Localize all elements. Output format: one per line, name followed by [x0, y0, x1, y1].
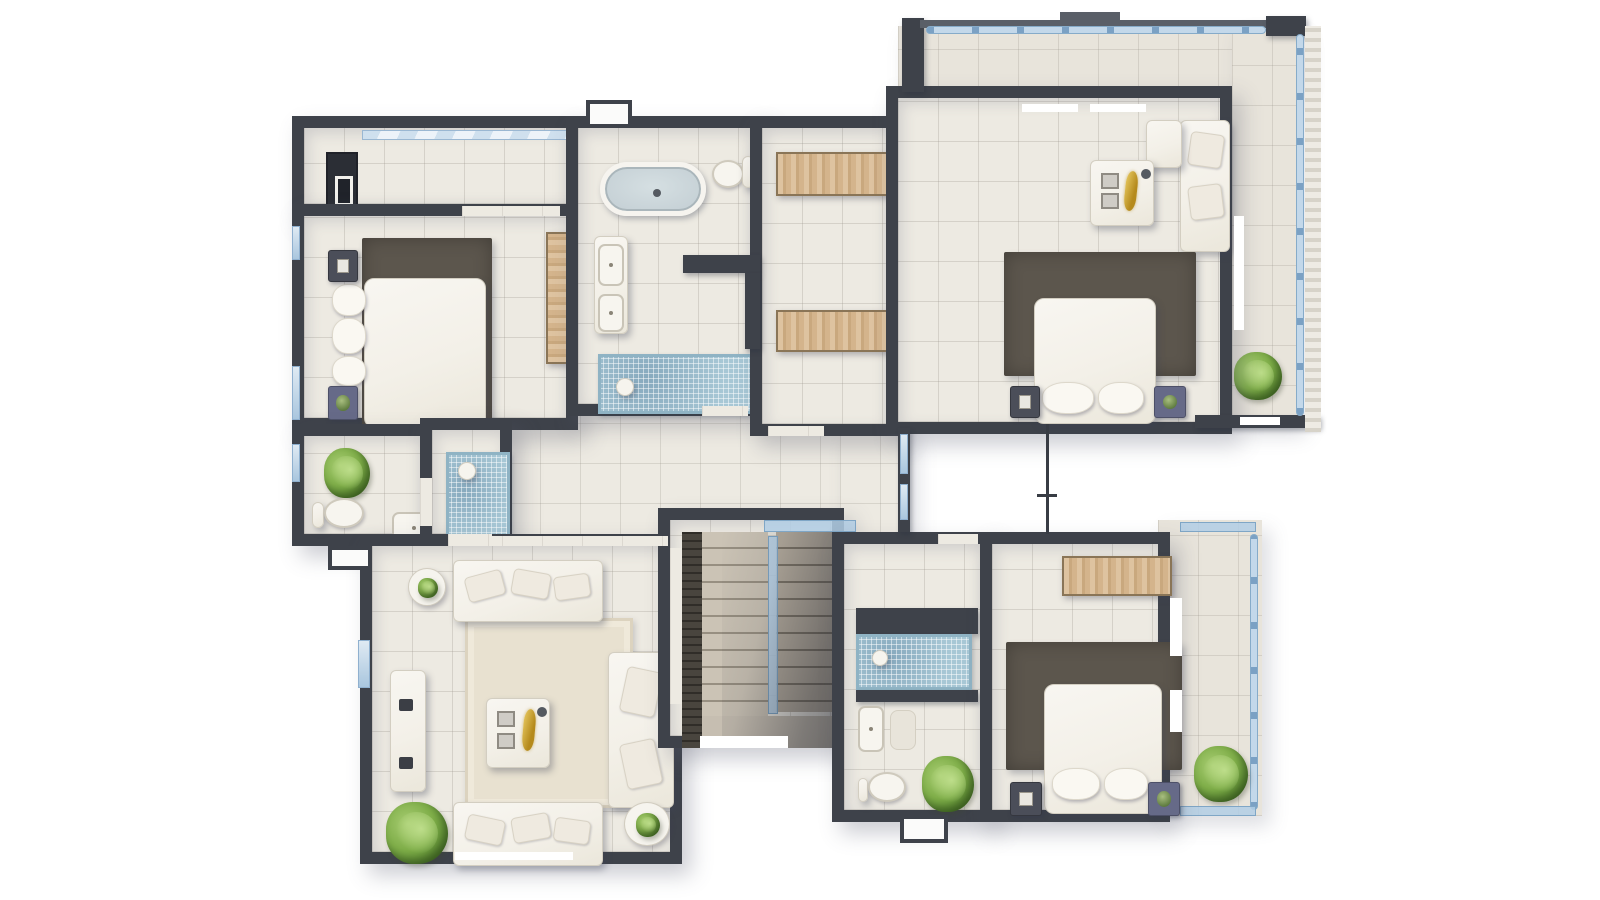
- toilet: [324, 498, 364, 528]
- living-room: [360, 534, 682, 864]
- side-table: [624, 802, 670, 846]
- balcony-door: [1170, 598, 1182, 656]
- sink: [598, 294, 624, 332]
- terrace-side-wall: [902, 18, 924, 92]
- table-plant: [418, 578, 438, 598]
- nightstand: [1154, 386, 1186, 418]
- glass-slider-door: [362, 130, 578, 140]
- terrace-edge-stub: [1060, 12, 1120, 22]
- pillow: [1052, 768, 1100, 800]
- side-table: [408, 568, 446, 606]
- terrace-corner: [1266, 16, 1306, 36]
- nightstand: [1010, 782, 1042, 816]
- cushion: [510, 568, 552, 600]
- decor-book: [399, 757, 413, 769]
- tv-stand: [1090, 160, 1154, 226]
- shower-room: [420, 418, 512, 546]
- stair-glass-top: [764, 520, 856, 532]
- sofa: [1180, 120, 1230, 252]
- console-table: [390, 670, 426, 792]
- pillow: [1098, 382, 1144, 414]
- window: [292, 366, 300, 420]
- gold-leaf-decor: [521, 709, 537, 752]
- vent-stub: [328, 546, 372, 570]
- shower-head: [616, 378, 634, 396]
- pillow: [332, 356, 366, 386]
- terrace-railing: [926, 26, 1266, 34]
- balcony-glass-top: [1180, 522, 1256, 532]
- window: [900, 484, 908, 520]
- bath-mat: [890, 710, 916, 750]
- cushion: [510, 812, 552, 844]
- nightstand: [1010, 386, 1040, 418]
- sofa: [453, 560, 603, 622]
- gold-leaf-decor: [1123, 170, 1139, 211]
- sink: [598, 244, 624, 286]
- cushion: [619, 666, 664, 718]
- balcony-plant: [1194, 746, 1248, 802]
- door-opening: [768, 426, 824, 436]
- section-line: [1046, 424, 1049, 534]
- closet-nook-wall: [683, 255, 760, 273]
- picture-frame: [1101, 193, 1119, 209]
- cushion: [464, 813, 507, 846]
- pillow: [332, 318, 366, 354]
- bathroom-2: [832, 532, 992, 822]
- master-bedroom: [886, 86, 1232, 434]
- cushion: [1187, 183, 1225, 221]
- bath-plant: [922, 756, 974, 812]
- bedroom-1: [292, 204, 578, 430]
- window: [292, 226, 300, 260]
- table-plant: [636, 813, 660, 837]
- cushion: [553, 573, 592, 602]
- toilet-tank: [858, 778, 868, 802]
- pergola-slats: [1305, 26, 1321, 432]
- picture-frame: [497, 733, 515, 749]
- toilet: [868, 772, 906, 802]
- door-opening: [702, 406, 748, 416]
- nightstand: [328, 386, 358, 420]
- vent-stub: [586, 100, 632, 128]
- cushion: [553, 817, 592, 846]
- nightstand: [1148, 782, 1180, 816]
- terrace-plant: [1234, 352, 1282, 400]
- section-line-tick: [1037, 494, 1057, 497]
- balcony-railing: [1250, 534, 1258, 810]
- cushion: [619, 738, 664, 790]
- balcony-bottom-glass: [1240, 417, 1280, 425]
- cushion: [463, 569, 506, 604]
- pillow: [1042, 382, 1094, 414]
- terrace-door: [1234, 216, 1244, 330]
- window: [358, 640, 370, 688]
- cushion: [1187, 131, 1225, 169]
- toilet: [712, 160, 744, 188]
- window-slit: [1090, 104, 1146, 112]
- bedroom-2: [980, 532, 1170, 822]
- bedroom-1-bed: [364, 278, 486, 428]
- closet-hall: [750, 116, 898, 436]
- wc: [292, 424, 432, 546]
- picture-frame: [1101, 173, 1119, 189]
- stair-wall-band: [682, 532, 702, 748]
- terrace-railing: [1296, 34, 1304, 416]
- door-opening: [420, 478, 432, 526]
- patio-door: [455, 852, 573, 860]
- tub-drain: [653, 189, 661, 197]
- balcony-glass-bottom: [1180, 806, 1256, 816]
- living-plant: [386, 802, 448, 864]
- tv-cabinet: [486, 698, 550, 768]
- stair-gap: [700, 736, 788, 748]
- balcony-door: [1170, 690, 1182, 732]
- window-slit: [1022, 104, 1078, 112]
- shower-head: [458, 462, 476, 480]
- closet-nook-wall: [745, 273, 760, 349]
- door-opening: [462, 536, 668, 546]
- window: [900, 434, 908, 474]
- staircase: [658, 508, 844, 748]
- pillow: [332, 284, 366, 316]
- decor-bowl: [537, 707, 547, 717]
- shower-wall: [856, 608, 978, 634]
- shower-wall: [856, 690, 978, 702]
- door-opening: [938, 534, 978, 544]
- wardrobe: [776, 152, 894, 196]
- wardrobe: [776, 310, 894, 352]
- vent-stub: [900, 815, 948, 843]
- pillow: [1104, 768, 1148, 800]
- decor-book: [399, 699, 413, 711]
- door-opening: [462, 206, 560, 216]
- window: [292, 444, 300, 482]
- shower-head: [872, 650, 888, 666]
- toilet-tank: [312, 502, 324, 528]
- picture-frame: [497, 711, 515, 727]
- wardrobe: [1062, 556, 1172, 596]
- door-opening: [448, 534, 492, 546]
- door-opening: [670, 548, 682, 704]
- stair-glass-balustrade: [768, 536, 778, 714]
- sink: [858, 706, 884, 752]
- nightstand: [328, 250, 358, 282]
- wc-plant: [324, 448, 370, 498]
- dressing-room: [292, 116, 578, 216]
- tv-screen: [335, 176, 353, 206]
- bathtub: [600, 162, 706, 216]
- floorplan-canvas: [0, 0, 1600, 900]
- decor-bowl: [1141, 169, 1151, 179]
